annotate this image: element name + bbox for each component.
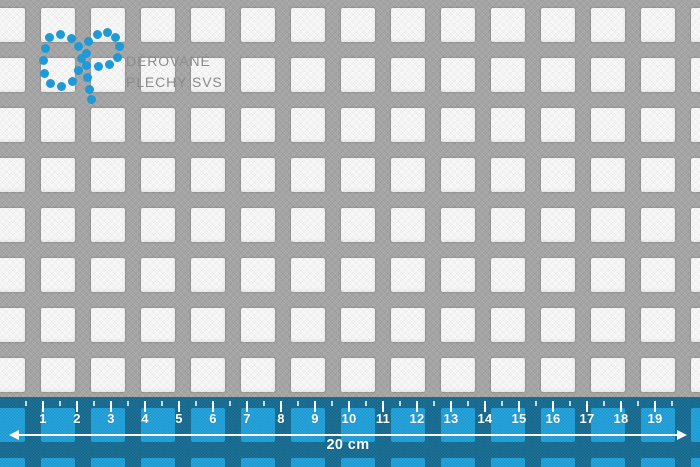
ruler-number: 14 — [477, 412, 492, 426]
perforation-hole — [291, 8, 325, 42]
logo-dot — [82, 49, 91, 58]
perforation-hole — [391, 8, 425, 42]
perforation-hole — [91, 158, 125, 192]
ruler-tick-minor — [569, 401, 571, 406]
logo-dot — [46, 79, 55, 88]
perforation-hole — [441, 208, 475, 242]
perforation-hole — [541, 208, 575, 242]
perforation-hole — [241, 208, 275, 242]
ruler-tick-minor — [399, 401, 401, 406]
perforation-hole — [91, 208, 125, 242]
perforation-hole — [641, 158, 675, 192]
ruler-arrowhead-right-icon — [677, 430, 687, 440]
ruler-number: 7 — [243, 412, 251, 426]
perforation-hole — [141, 358, 175, 392]
ruler-tick-minor — [59, 401, 61, 406]
ruler-number: 13 — [443, 412, 458, 426]
perforation-hole — [491, 308, 525, 342]
perforation-hole — [491, 108, 525, 142]
perforation-hole — [441, 358, 475, 392]
ruler-number: 8 — [277, 412, 285, 426]
ruler-tick-minor — [297, 401, 299, 406]
perforation-hole — [141, 258, 175, 292]
ruler-tick-minor — [263, 401, 265, 406]
perforation-hole — [291, 108, 325, 142]
ruler-tick-minor — [25, 401, 27, 406]
perforation-hole — [91, 108, 125, 142]
perforation-hole — [341, 108, 375, 142]
perforation-hole — [241, 158, 275, 192]
perforation-hole — [591, 358, 625, 392]
ruler-tick-minor — [331, 401, 333, 406]
perforation-hole — [591, 158, 625, 192]
perforation-hole — [341, 8, 375, 42]
perforation-hole — [391, 58, 425, 92]
perforation-hole — [141, 208, 175, 242]
perforation-hole — [491, 208, 525, 242]
logo-dot — [68, 77, 77, 86]
logo-line-1: DĚROVANÉ — [126, 51, 223, 72]
perforation-hole — [291, 158, 325, 192]
perforation-hole — [91, 258, 125, 292]
ruler-tick-minor — [195, 401, 197, 406]
perforation-hole — [591, 258, 625, 292]
perforation-hole — [691, 158, 700, 192]
perforation-hole — [491, 158, 525, 192]
perforation-hole — [0, 358, 25, 392]
logo-dot — [105, 60, 114, 69]
ruler-tick-minor — [365, 401, 367, 406]
logo-text: DĚROVANÉ PLECHY SVS — [126, 51, 223, 93]
logo-dot — [87, 95, 96, 104]
perforation-hole — [391, 258, 425, 292]
perforation-hole — [691, 208, 700, 242]
ruler-number: 12 — [409, 412, 424, 426]
logo-dot — [74, 42, 83, 51]
ruler-number: 3 — [107, 412, 115, 426]
ruler-number: 18 — [613, 412, 628, 426]
perforation-hole — [641, 108, 675, 142]
perforation-hole — [691, 258, 700, 292]
perforation-hole — [191, 108, 225, 142]
perforation-hole — [0, 158, 25, 192]
perforation-hole — [341, 258, 375, 292]
perforation-hole — [0, 208, 25, 242]
perforation-hole — [541, 358, 575, 392]
ruler-tick-minor — [127, 401, 129, 406]
perforation-hole — [141, 158, 175, 192]
perforation-hole — [41, 108, 75, 142]
perforation-hole — [291, 58, 325, 92]
ruler-arrowhead-left-icon — [9, 430, 19, 440]
logo-dot — [111, 33, 120, 42]
dp-logo: DĚROVANÉ PLECHY SVS — [0, 0, 260, 110]
ruler-number: 19 — [647, 412, 662, 426]
ruler-tick-minor — [671, 401, 673, 406]
ruler-number: 6 — [209, 412, 217, 426]
perforation-hole — [191, 308, 225, 342]
perforation-hole — [541, 58, 575, 92]
perforation-hole — [291, 208, 325, 242]
perforation-hole — [541, 8, 575, 42]
perforation-hole — [241, 258, 275, 292]
perforation-hole — [241, 308, 275, 342]
ruler-length-label: 20 cm — [326, 437, 369, 453]
logo-dot — [83, 73, 92, 82]
logo-dot — [93, 30, 102, 39]
perforation-hole — [91, 358, 125, 392]
ruler: 20 cm 12345678910111213141516171819 — [0, 397, 700, 467]
perforation-hole — [441, 308, 475, 342]
perforation-hole — [541, 158, 575, 192]
ruler-number: 10 — [341, 412, 356, 426]
perforation-hole — [41, 208, 75, 242]
ruler-tick-minor — [501, 401, 503, 406]
perforation-hole — [691, 8, 700, 42]
perforation-hole — [291, 308, 325, 342]
logo-dot — [74, 66, 83, 75]
ruler-number: 9 — [311, 412, 319, 426]
perforation-hole — [591, 108, 625, 142]
ruler-number: 15 — [511, 412, 526, 426]
perforation-hole — [41, 308, 75, 342]
perforation-hole — [341, 208, 375, 242]
perforation-hole — [341, 158, 375, 192]
perforation-hole — [541, 308, 575, 342]
perforation-hole — [541, 258, 575, 292]
perforation-hole — [0, 258, 25, 292]
perforation-hole — [441, 8, 475, 42]
perforation-hole — [391, 208, 425, 242]
perforation-hole — [0, 308, 25, 342]
perforation-hole — [691, 108, 700, 142]
ruler-number: 16 — [545, 412, 560, 426]
logo-dot — [94, 62, 103, 71]
perforation-hole — [691, 308, 700, 342]
perforation-hole — [391, 158, 425, 192]
perforation-hole — [391, 358, 425, 392]
logo-dot — [39, 56, 48, 65]
logo-dot — [45, 33, 54, 42]
perforation-hole — [591, 308, 625, 342]
logo-dot — [113, 53, 122, 62]
logo-dot — [85, 85, 94, 94]
perforation-hole — [141, 108, 175, 142]
perforation-hole — [291, 358, 325, 392]
perforation-hole — [491, 8, 525, 42]
logo-dot — [115, 42, 124, 51]
logo-dot — [67, 34, 76, 43]
perforation-hole — [241, 358, 275, 392]
ruler-tick-minor — [535, 401, 537, 406]
perforation-hole — [341, 58, 375, 92]
ruler-tick-minor — [603, 401, 605, 406]
perforation-hole — [391, 308, 425, 342]
perforation-hole — [641, 358, 675, 392]
logo-dot — [41, 44, 50, 53]
ruler-tick-minor — [161, 401, 163, 406]
perforation-hole — [491, 258, 525, 292]
perforation-hole — [241, 108, 275, 142]
perforation-hole — [491, 58, 525, 92]
perforation-hole — [41, 358, 75, 392]
perforation-hole — [441, 158, 475, 192]
perforated-sheet-photo: 20 cm 12345678910111213141516171819 DĚRO… — [0, 0, 700, 467]
perforation-hole — [0, 108, 25, 142]
perforation-hole — [691, 58, 700, 92]
perforation-hole — [191, 158, 225, 192]
perforation-hole — [641, 308, 675, 342]
ruler-tick-minor — [93, 401, 95, 406]
perforation-hole — [441, 258, 475, 292]
logo-dot — [56, 30, 65, 39]
perforation-hole — [591, 208, 625, 242]
perforation-hole — [191, 358, 225, 392]
ruler-number: 17 — [579, 412, 594, 426]
perforation-hole — [591, 8, 625, 42]
ruler-number: 1 — [39, 412, 47, 426]
perforation-hole — [641, 58, 675, 92]
perforation-hole — [91, 308, 125, 342]
perforation-hole — [341, 308, 375, 342]
perforation-hole — [591, 58, 625, 92]
perforation-hole — [291, 258, 325, 292]
perforation-hole — [191, 258, 225, 292]
perforation-hole — [641, 258, 675, 292]
ruler-number: 5 — [175, 412, 183, 426]
perforation-hole — [141, 308, 175, 342]
ruler-tick-minor — [467, 401, 469, 406]
perforation-hole — [441, 58, 475, 92]
logo-dot — [57, 82, 66, 91]
ruler-number: 4 — [141, 412, 149, 426]
perforation-hole — [391, 108, 425, 142]
logo-dot — [103, 28, 112, 37]
ruler-arrow-line — [15, 434, 680, 436]
perforation-hole — [641, 208, 675, 242]
perforation-hole — [691, 358, 700, 392]
perforation-hole — [41, 258, 75, 292]
perforation-hole — [491, 358, 525, 392]
logo-dot — [40, 69, 49, 78]
logo-dot — [82, 61, 91, 70]
perforation-hole — [191, 208, 225, 242]
ruler-tick-minor — [229, 401, 231, 406]
ruler-tick-minor — [637, 401, 639, 406]
logo-line-2: PLECHY SVS — [126, 72, 223, 93]
perforation-hole — [541, 108, 575, 142]
ruler-number: 2 — [73, 412, 81, 426]
perforation-hole — [41, 158, 75, 192]
perforation-hole — [641, 8, 675, 42]
perforation-hole — [441, 108, 475, 142]
ruler-number: 11 — [376, 412, 390, 426]
perforation-hole — [341, 358, 375, 392]
ruler-tick-minor — [433, 401, 435, 406]
logo-dot — [84, 37, 93, 46]
